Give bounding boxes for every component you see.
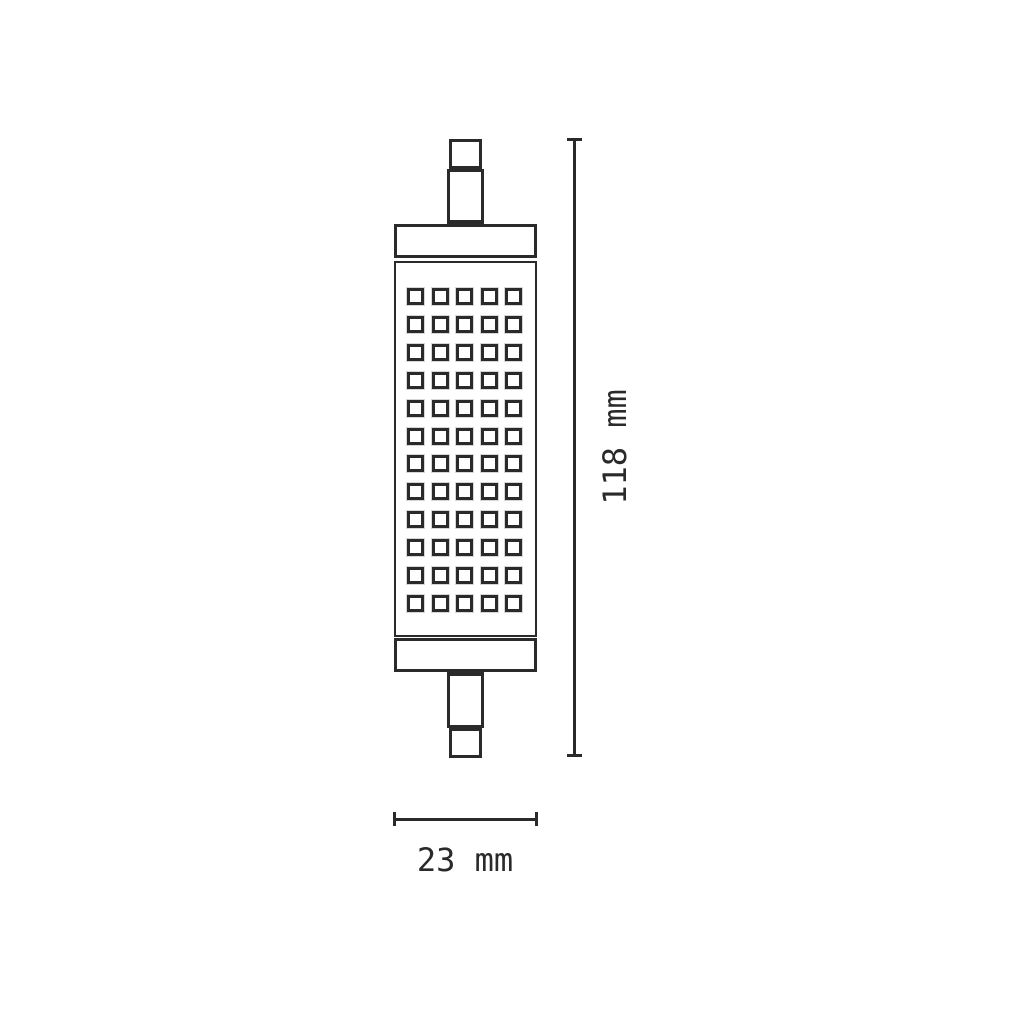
led-square	[481, 400, 498, 417]
led-square	[456, 595, 473, 612]
led-square	[505, 483, 522, 500]
led-square	[505, 455, 522, 472]
lamp-top-pin-tip	[449, 139, 482, 170]
led-square	[481, 511, 498, 528]
led-square	[407, 288, 424, 305]
led-square	[407, 428, 424, 445]
width-dimension-tick-left	[393, 812, 396, 826]
led-square	[407, 595, 424, 612]
led-grid	[407, 288, 523, 618]
lamp-top-pin	[447, 169, 484, 225]
lamp-bottom-pin-tip	[449, 727, 482, 758]
technical-drawing-canvas: 118 mm 23 mm	[0, 0, 1024, 1024]
led-square	[432, 316, 449, 333]
led-square	[481, 483, 498, 500]
led-square	[407, 316, 424, 333]
led-square	[505, 567, 522, 584]
led-square	[481, 539, 498, 556]
lamp-bottom-cap	[394, 638, 537, 672]
led-square	[481, 455, 498, 472]
lamp-bottom-pin	[447, 671, 484, 728]
led-square	[407, 344, 424, 361]
led-square	[432, 567, 449, 584]
height-dimension-tick-bottom	[567, 754, 582, 757]
width-dimension-label: 23 mm	[365, 838, 565, 882]
led-square	[456, 483, 473, 500]
led-square	[456, 372, 473, 389]
led-square	[505, 595, 522, 612]
led-square	[505, 400, 522, 417]
led-square	[407, 511, 424, 528]
led-square	[481, 567, 498, 584]
led-square	[505, 372, 522, 389]
width-dimension-line	[394, 818, 537, 821]
led-square	[481, 428, 498, 445]
led-square	[407, 567, 424, 584]
led-square	[481, 595, 498, 612]
led-square	[432, 483, 449, 500]
led-square	[481, 344, 498, 361]
led-square	[456, 511, 473, 528]
height-dimension-line	[573, 139, 576, 756]
width-dimension-tick-right	[535, 812, 538, 826]
led-square	[456, 288, 473, 305]
led-square	[456, 344, 473, 361]
led-square	[432, 288, 449, 305]
led-square	[481, 372, 498, 389]
led-square	[432, 595, 449, 612]
led-square	[505, 539, 522, 556]
height-dimension-label: 118 mm	[597, 347, 633, 547]
led-square	[456, 316, 473, 333]
led-square	[432, 400, 449, 417]
height-dimension-tick-top	[567, 138, 582, 141]
led-square	[456, 455, 473, 472]
led-square	[456, 567, 473, 584]
led-square	[456, 428, 473, 445]
led-square	[505, 316, 522, 333]
led-square	[407, 483, 424, 500]
led-square	[407, 455, 424, 472]
led-square	[432, 428, 449, 445]
led-square	[456, 400, 473, 417]
led-square	[481, 316, 498, 333]
lamp-top-cap	[394, 224, 537, 258]
led-square	[432, 539, 449, 556]
led-square	[407, 539, 424, 556]
led-square	[432, 344, 449, 361]
led-square	[481, 288, 498, 305]
led-square	[407, 372, 424, 389]
led-square	[505, 288, 522, 305]
led-square	[432, 372, 449, 389]
led-square	[505, 511, 522, 528]
led-square	[432, 455, 449, 472]
led-square	[407, 400, 424, 417]
led-square	[432, 511, 449, 528]
led-square	[505, 428, 522, 445]
led-square	[505, 344, 522, 361]
led-square	[456, 539, 473, 556]
